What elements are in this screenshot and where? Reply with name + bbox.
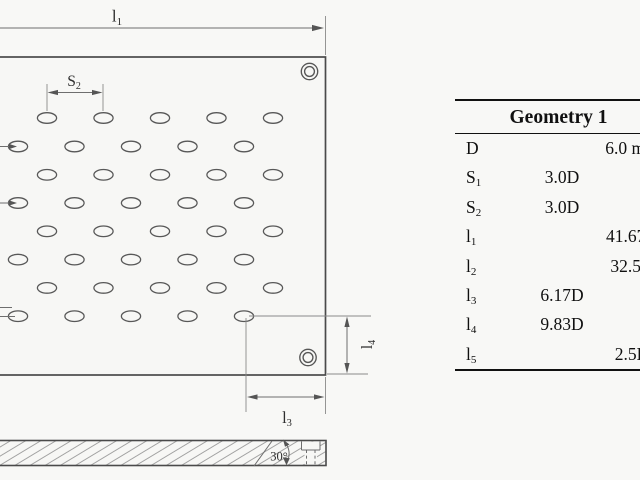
value-rel-cell: 3.0D <box>515 163 602 195</box>
cooling-hole <box>178 311 197 322</box>
cooling-hole <box>121 311 140 322</box>
table-row: l4 9.83D <box>455 310 640 339</box>
cooling-hole <box>178 254 197 265</box>
cooling-hole <box>65 254 84 265</box>
cooling-hole <box>37 283 56 294</box>
param-cell: l2 <box>455 252 515 284</box>
cooling-hole <box>37 170 56 181</box>
angle-label: 30° <box>270 450 288 464</box>
table-row: l3 6.17D <box>455 281 640 310</box>
cooling-hole <box>263 113 282 124</box>
param-cell: S1 <box>455 163 515 195</box>
value-rel-cell: 6.17D <box>515 281 602 313</box>
cooling-hole <box>234 198 253 209</box>
param-cell: l4 <box>455 310 515 342</box>
cooling-hole <box>65 141 84 152</box>
cooling-hole <box>94 113 113 124</box>
cooling-hole <box>263 226 282 237</box>
value-rel-cell <box>515 252 602 284</box>
value-abs-cell <box>602 281 640 313</box>
value-abs-cell: 2.5D <box>602 340 640 372</box>
cooling-hole <box>150 113 169 124</box>
cooling-hole <box>150 283 169 294</box>
cooling-hole <box>94 170 113 181</box>
cooling-hole <box>178 198 197 209</box>
cooling-hole <box>150 170 169 181</box>
cooling-hole <box>94 283 113 294</box>
dimension-l1: l1 <box>0 7 326 56</box>
value-rel-cell <box>515 222 602 254</box>
value-abs-cell <box>602 310 640 342</box>
cooling-hole <box>8 254 27 265</box>
value-abs-cell: 41.67D <box>602 222 640 254</box>
cooling-hole <box>121 141 140 152</box>
table-header: Geometry 1 <box>455 101 640 134</box>
cooling-hole <box>121 254 140 265</box>
l1-label: l1 <box>112 7 122 29</box>
cooling-hole <box>207 283 226 294</box>
technical-drawing: l1 S2 l4 <box>0 0 452 480</box>
value-abs-cell: 32.5D <box>602 252 640 284</box>
param-cell: D <box>455 134 515 166</box>
value-abs-cell <box>602 163 640 195</box>
cooling-hole <box>94 226 113 237</box>
figure-page: { "figure": { "drawing": { "labels": { "… <box>0 0 640 480</box>
table-row: l5 2.5D <box>455 340 640 369</box>
table-row: l2 32.5D <box>455 252 640 281</box>
l3-label: l3 <box>282 408 292 429</box>
cooling-hole <box>121 198 140 209</box>
cooling-hole <box>150 226 169 237</box>
value-abs-cell <box>602 193 640 225</box>
l4-label: l4 <box>359 340 378 349</box>
value-rel-cell: 3.0D <box>515 193 602 225</box>
cooling-hole <box>234 254 253 265</box>
cooling-hole <box>37 226 56 237</box>
geometry-table: Geometry 1 D 6.0 mm S1 3.0D S2 3.0D l1 4… <box>455 99 640 371</box>
value-rel-cell <box>515 134 602 166</box>
value-abs-cell: 6.0 mm <box>602 134 640 166</box>
cooling-hole <box>207 170 226 181</box>
param-cell: S2 <box>455 193 515 225</box>
cross-section-view: 30° <box>0 440 326 467</box>
cooling-hole <box>178 141 197 152</box>
param-cell: l3 <box>455 281 515 313</box>
param-cell: l1 <box>455 222 515 254</box>
table-row: S1 3.0D <box>455 163 640 192</box>
cooling-hole <box>234 141 253 152</box>
plate-top-view <box>0 57 326 375</box>
cooling-hole <box>263 283 282 294</box>
value-rel-cell <box>515 340 602 372</box>
cooling-hole <box>65 198 84 209</box>
cooling-hole <box>37 113 56 124</box>
table-row: S2 3.0D <box>455 193 640 222</box>
param-cell: l5 <box>455 340 515 372</box>
table-row: l1 41.67D <box>455 222 640 251</box>
cooling-hole <box>65 311 84 322</box>
cooling-hole <box>207 113 226 124</box>
table-row: D 6.0 mm <box>455 134 640 163</box>
cooling-hole <box>263 170 282 181</box>
value-rel-cell: 9.83D <box>515 310 602 342</box>
cooling-hole <box>207 226 226 237</box>
